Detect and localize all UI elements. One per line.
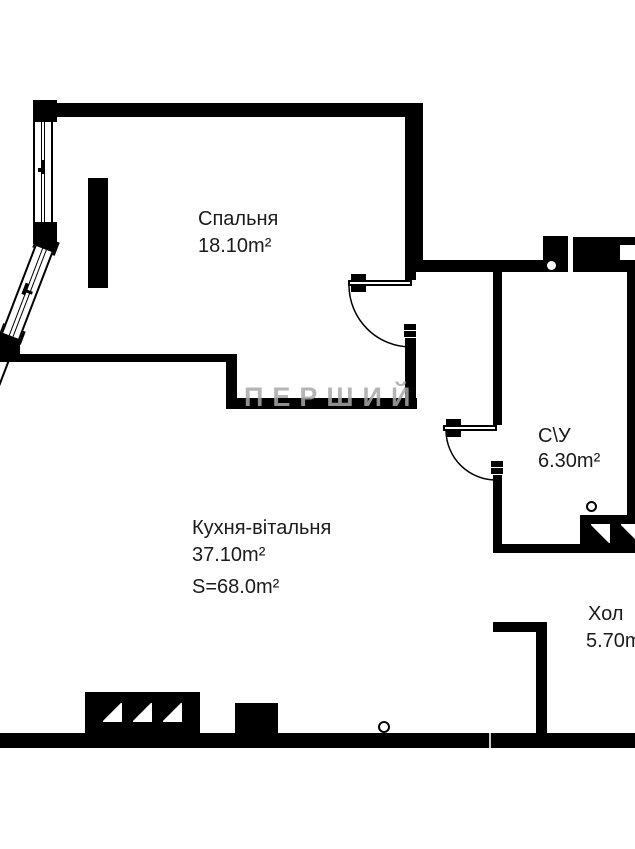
total-area-label: S=68.0m²: [192, 574, 279, 601]
room-label-bathroom: С\У 6.30m²: [538, 424, 600, 474]
room-name: Кухня-вітальня: [192, 515, 331, 542]
room-area: 6.30m²: [538, 449, 600, 474]
bedroom-door-arc: [349, 286, 411, 347]
room-area: 5.70m²: [586, 628, 635, 655]
room-name: Хол: [586, 601, 635, 628]
room-name: Спальня: [198, 206, 278, 233]
room-name: С\У: [538, 424, 600, 449]
bathroom-door-arc: [446, 431, 496, 480]
watermark-text: ПЕРШИЙ: [244, 382, 419, 413]
room-area: 37.10m²: [192, 542, 331, 569]
room-label-hall: Хол 5.70m²: [586, 601, 635, 655]
room-label-kitchen: Кухня-вітальня 37.10m²: [192, 515, 331, 569]
floor-plan: Спальня 18.10m² С\У 6.30m² Кухня-вітальн…: [0, 0, 635, 849]
room-label-bedroom: Спальня 18.10m²: [198, 206, 278, 260]
room-area: 18.10m²: [198, 233, 278, 260]
